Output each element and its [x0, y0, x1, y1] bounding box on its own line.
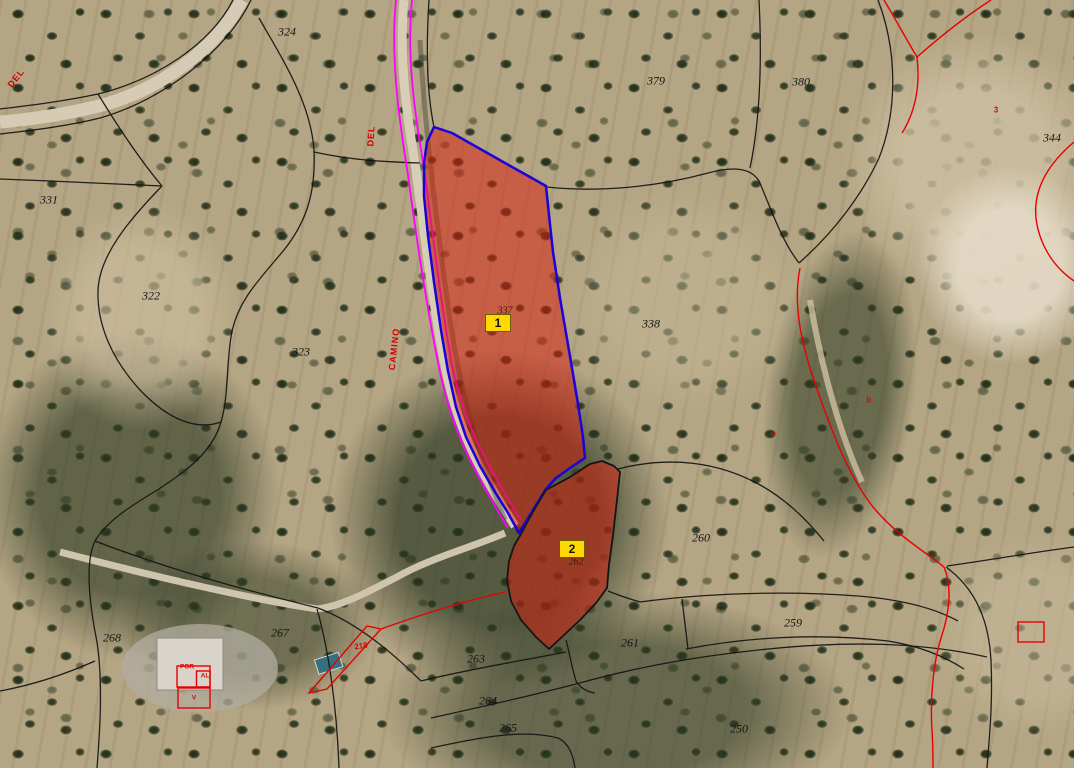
- parcel-1-badge[interactable]: 1: [485, 314, 511, 332]
- bare-field-left: [40, 200, 240, 430]
- bare-field-mid-right: [560, 185, 810, 415]
- vegetation-patch-bottom-left: [120, 540, 380, 710]
- map-viewport[interactable]: 337 262 1 2 324 379 380 344 331 322 323 …: [0, 0, 1074, 768]
- parcel-2-badge[interactable]: 2: [559, 540, 585, 558]
